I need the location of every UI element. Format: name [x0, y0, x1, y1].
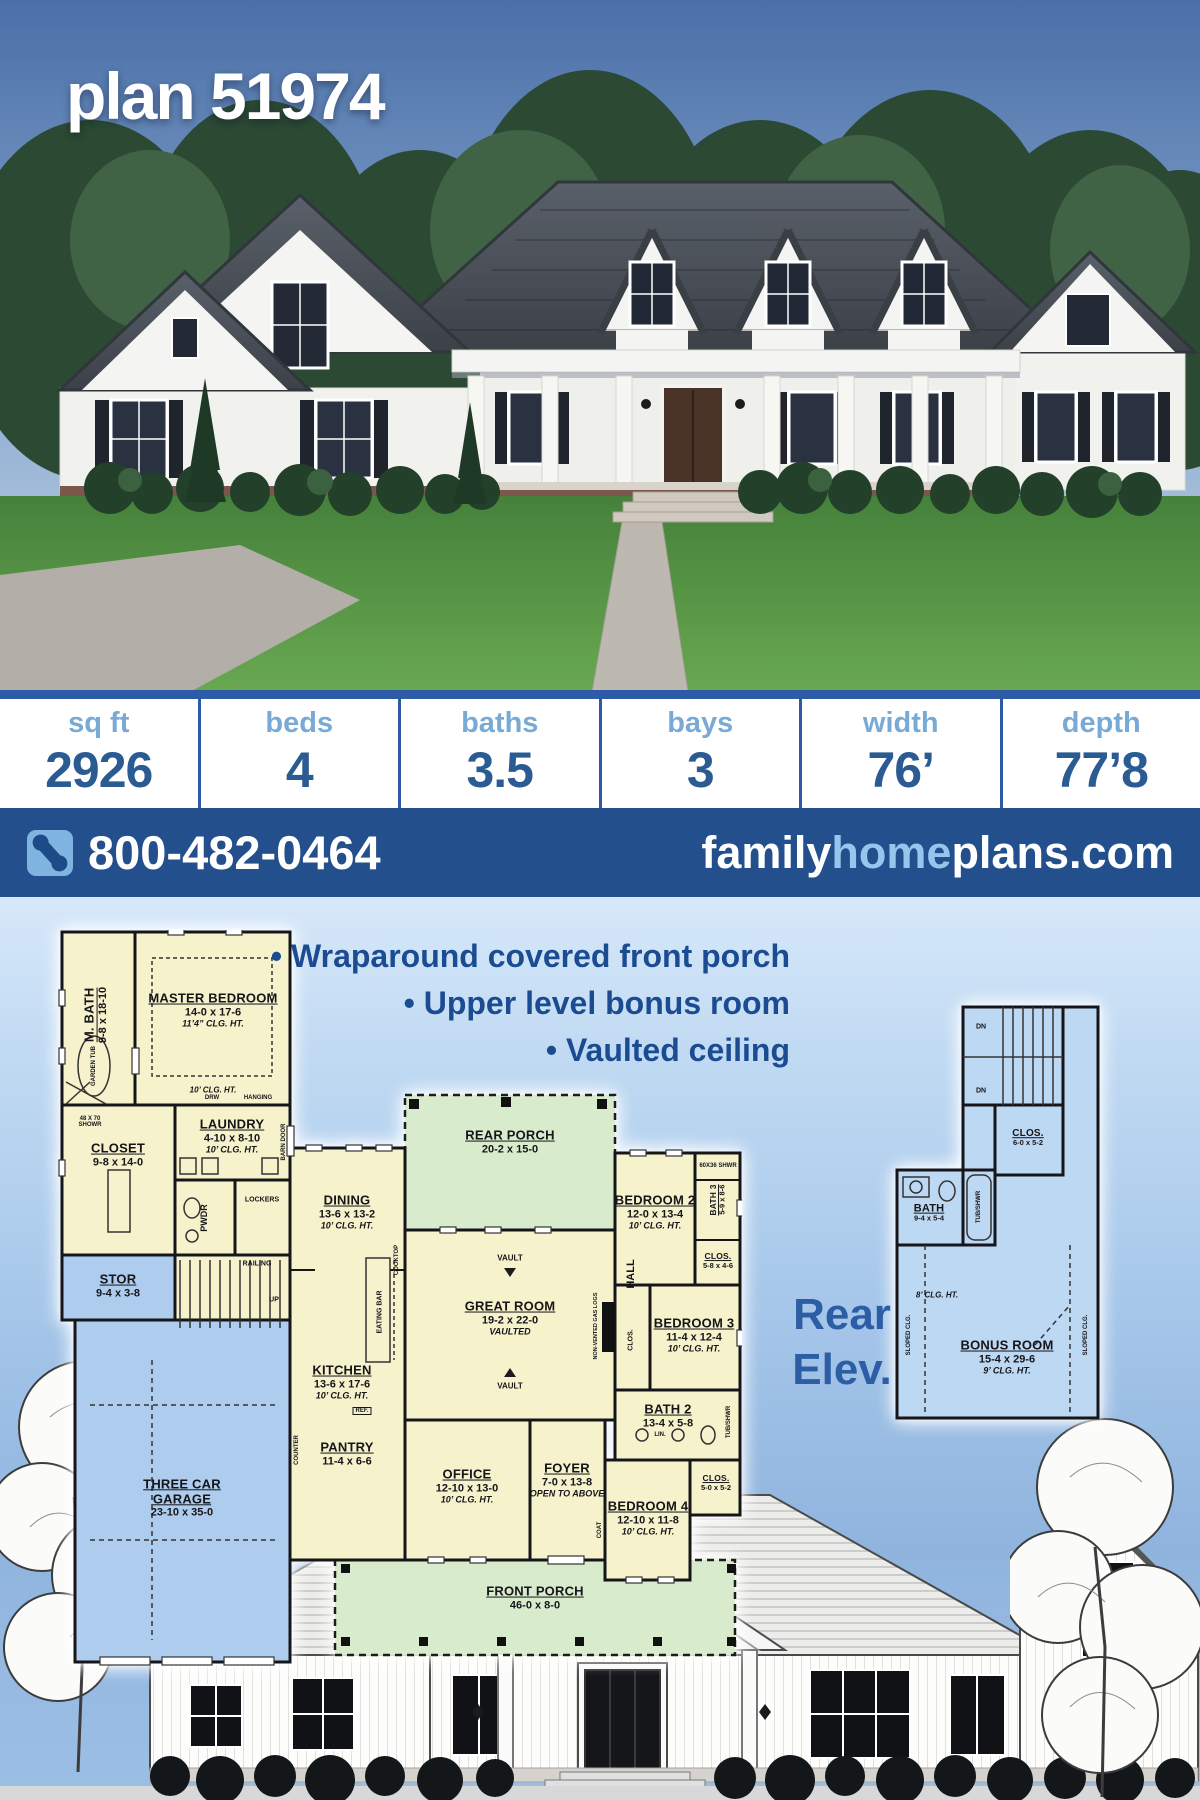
room-label-bonus-bath: BATH9-4 x 5-4: [914, 1203, 945, 1224]
phone-contact[interactable]: 800-482-0464: [26, 825, 381, 880]
poster-page: plan 51974 sq ft 2926 beds 4 baths 3.5 b…: [0, 0, 1200, 1800]
room-label-garage: THREE CAR GARAGE23-10 x 35-0: [117, 1477, 247, 1518]
stat-label: sq ft: [68, 707, 129, 740]
ann-drw: DRW: [205, 1095, 219, 1101]
ann-eating-bar: EATING BAR: [377, 1290, 384, 1333]
ann-showr: 48 X 70 SHOWR: [69, 1116, 111, 1128]
lower-section: • Wraparound covered front porch • Upper…: [0, 897, 1200, 1800]
stats-top-band: [0, 690, 1200, 699]
room-label-bedroom-3: BEDROOM 311-4 x 12-410’ CLG. HT.: [654, 1317, 735, 1354]
room-label-office: OFFICE12-10 x 13-010’ CLG. HT.: [436, 1468, 498, 1505]
ann-coat: COAT: [597, 1522, 603, 1539]
phone-icon: [26, 829, 74, 877]
room-label-foyer: FOYER7-0 x 13-8OPEN TO ABOVE: [530, 1462, 605, 1499]
room-label-stor: STOR9-4 x 3-8: [96, 1273, 140, 1300]
contact-bar: 800-482-0464 familyhomeplans.com: [0, 808, 1200, 897]
feature-item: • Upper level bonus room: [271, 980, 790, 1027]
stat-depth: depth 77’8: [1003, 699, 1200, 808]
room-label-bonus-room: BONUS ROOM15-4 x 29-69’ CLG. HT.: [961, 1339, 1054, 1376]
feature-item: • Vaulted ceiling: [271, 1027, 790, 1074]
phone-number[interactable]: 800-482-0464: [88, 825, 381, 880]
room-label-clos-bed2: CLOS.5-8 x 4-6: [703, 1252, 733, 1270]
ann-cooktop: COOKTOP: [394, 1245, 400, 1275]
ann-gas-logs: NON-VENTED GAS LOGS: [593, 1293, 599, 1360]
stat-label: depth: [1062, 707, 1141, 740]
ann-hanging: HANGING: [244, 1095, 272, 1101]
room-label-bedroom-4: BEDROOM 412-10 x 11-810’ CLG. HT.: [608, 1500, 689, 1537]
stat-value: 4: [286, 741, 313, 799]
stat-width: width 76’: [802, 699, 1003, 808]
room-label-closet: CLOSET9-8 x 14-0: [91, 1142, 145, 1169]
vault-arrow-down: [504, 1268, 516, 1277]
feature-list: • Wraparound covered front porch • Upper…: [271, 933, 790, 1074]
ann-dn-1: DN: [976, 1024, 986, 1031]
stat-label: beds: [265, 707, 333, 740]
feature-item: • Wraparound covered front porch: [271, 933, 790, 980]
ann-master-clg: 10’ CLG. HT.: [190, 1086, 237, 1095]
room-label-bedroom-2: BEDROOM 212-0 x 13-410’ CLG. HT.: [615, 1194, 696, 1231]
room-label-great-room: GREAT ROOM19-2 x 22-0VAULTED: [465, 1300, 556, 1337]
stats-table: sq ft 2926 beds 4 baths 3.5 bays 3 width…: [0, 699, 1200, 808]
website-text[interactable]: familyhomeplans.com: [701, 827, 1174, 879]
stat-baths: baths 3.5: [401, 699, 602, 808]
ann-railing: RAILING: [243, 1261, 272, 1268]
room-label-pantry: PANTRY11-4 x 6-6: [320, 1441, 373, 1468]
stat-value: 2926: [45, 741, 152, 799]
ann-clos-bed3: CLOS.: [628, 1329, 635, 1350]
ann-barn-door: BARN DOOR: [281, 1124, 287, 1161]
fireplace: [602, 1302, 615, 1352]
stat-value: 3: [687, 741, 714, 799]
stat-label: width: [863, 707, 939, 740]
ann-vault-lower: VAULT: [497, 1382, 522, 1391]
room-label-front-porch: FRONT PORCH46-0 x 8-0: [486, 1585, 584, 1612]
stat-label: baths: [461, 707, 538, 740]
stat-value: 3.5: [466, 741, 533, 799]
ann-counter: COUNTER: [294, 1435, 300, 1465]
room-label-m-bath: M. BATH9-8 x 18-10: [83, 987, 110, 1043]
house-photo: plan 51974: [0, 0, 1200, 692]
ann-hall: HALL: [625, 1259, 637, 1288]
site-part-plans: plans.com: [951, 827, 1174, 878]
stat-value: 77’8: [1055, 741, 1148, 799]
room-label-bonus-clos: CLOS.6-0 x 5-2: [1012, 1128, 1044, 1148]
ann-garden-tub: GARDEN TUB: [91, 1046, 97, 1086]
ann-tub-shwr: TUB/SHWR: [726, 1406, 732, 1438]
ann-ref: REF.: [352, 1407, 371, 1415]
vault-arrow-up: [504, 1368, 516, 1377]
room-label-dining: DINING13-6 x 13-210’ CLG. HT.: [319, 1194, 375, 1231]
ann-shwr-60: 60X36 SHWR: [697, 1163, 739, 1169]
room-label-bath-3: BATH 35-9 x 8-6: [709, 1184, 727, 1215]
room-label-master-bedroom: MASTER BEDROOM14-0 x 17-611’4” CLG. HT.: [148, 992, 277, 1029]
rear-elev-label: Rear Elev.: [757, 1287, 927, 1397]
stat-sqft: sq ft 2926: [0, 699, 201, 808]
ann-lockers: LOCKERS: [245, 1197, 279, 1204]
site-part-family: family: [701, 827, 831, 878]
room-label-bath-2: BATH 213-4 x 5-8: [643, 1403, 693, 1430]
stat-value: 76’: [867, 741, 934, 799]
ann-bonus-tub: TUB/SHWR: [976, 1191, 982, 1223]
ann-pwdr: PWDR: [199, 1204, 209, 1232]
page-title: plan 51974: [66, 58, 384, 134]
site-part-home: home: [831, 827, 951, 878]
room-label-clos-bed4: CLOS.5-0 x 5-2: [701, 1474, 731, 1492]
stat-bays: bays 3: [602, 699, 803, 808]
ann-up: UP: [269, 1297, 279, 1304]
tree-right-sketch: [1010, 1397, 1200, 1800]
ann-vault-upper: VAULT: [497, 1254, 522, 1263]
stat-beds: beds 4: [201, 699, 402, 808]
porch-roof: [452, 350, 1020, 372]
ann-lin: LIN.: [654, 1432, 665, 1438]
room-label-kitchen: KITCHEN13-6 x 17-610’ CLG. HT.: [312, 1364, 371, 1401]
ann-sloped-right: SLOPED CLG.: [1083, 1315, 1089, 1356]
elev-door: [585, 1670, 660, 1773]
dormers: [600, 230, 976, 358]
stat-label: bays: [667, 707, 733, 740]
ann-dn-2: DN: [976, 1088, 986, 1095]
room-label-rear-porch: REAR PORCH20-2 x 15-0: [465, 1129, 554, 1156]
room-label-laundry: LAUNDRY4-10 x 8-1010’ CLG. HT.: [200, 1118, 264, 1155]
